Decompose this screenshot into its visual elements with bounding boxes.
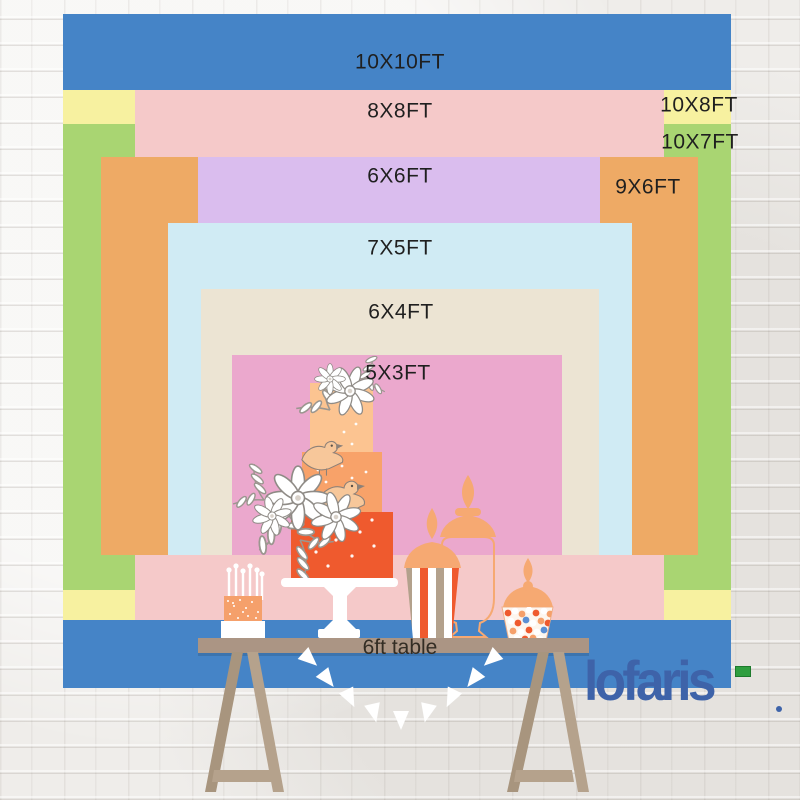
- backdrop-label-6x4: 6X4FT: [368, 302, 434, 323]
- backdrop-label-7x5: 7X5FT: [367, 238, 433, 259]
- brand-green-chip: [735, 666, 751, 677]
- backdrop-label-8x8: 8X8FT: [367, 101, 433, 122]
- table-size-label: 6ft table: [363, 636, 438, 660]
- brand-logo: lofaris: [584, 656, 713, 706]
- backdrop-label-10x8: 10X8FT: [660, 95, 738, 116]
- backdrop-5x3: [232, 355, 562, 555]
- brand-dot: [776, 706, 782, 712]
- brick-wall-background: 10X10FT 8X8FT 10X8FT 10X7FT 6X6FT 9X6FT …: [0, 0, 800, 800]
- backdrop-label-5x3: 5X3FT: [365, 363, 431, 384]
- backdrop-label-10x7: 10X7FT: [661, 132, 739, 153]
- backdrop-label-6x6: 6X6FT: [367, 166, 433, 187]
- backdrop-label-10x10: 10X10FT: [355, 52, 445, 73]
- backdrop-label-9x6: 9X6FT: [615, 177, 681, 198]
